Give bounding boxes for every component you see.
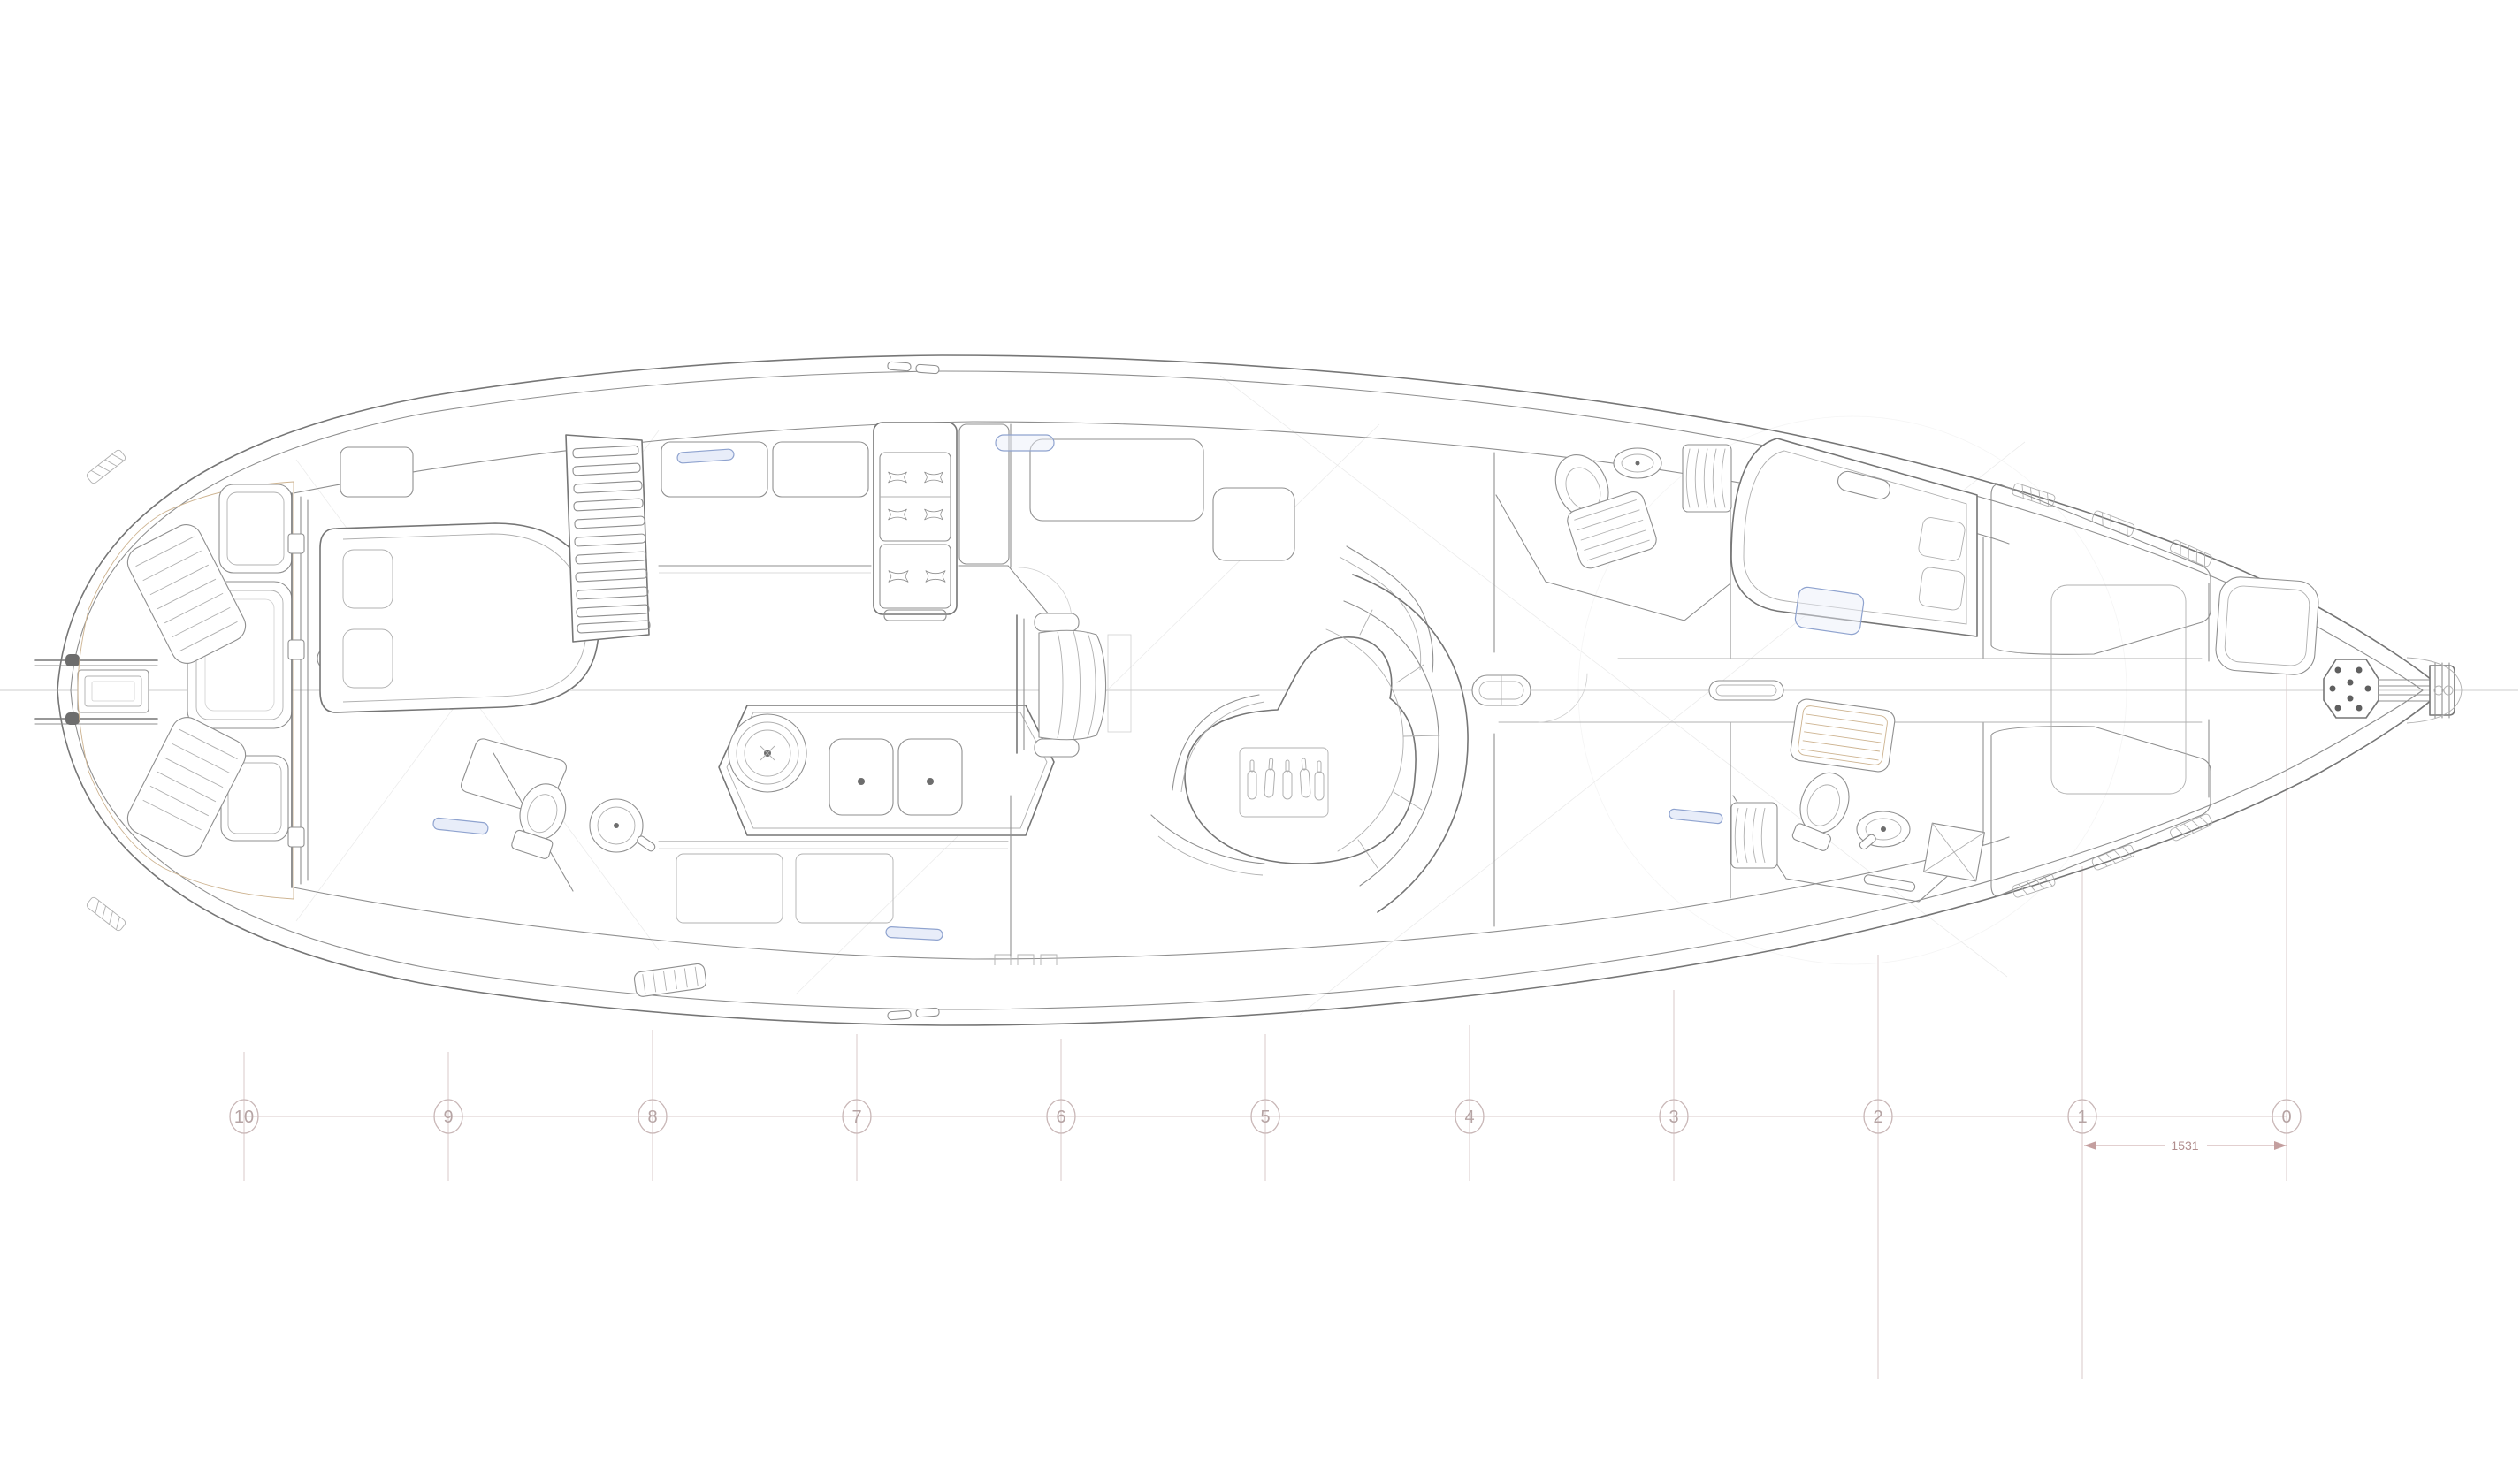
quilt-top — [1991, 484, 2211, 655]
grab-handle-blue — [432, 818, 488, 834]
sink — [1857, 811, 1910, 850]
galley-locker — [773, 442, 868, 497]
grab-handle-blue — [886, 926, 943, 940]
station-label: 2 — [1873, 1108, 1882, 1127]
berth-insert — [2051, 585, 2186, 794]
grab-handle-blue — [1669, 809, 1723, 824]
fore-hatch — [2214, 575, 2319, 676]
floor-grate — [633, 963, 706, 997]
station-label: 9 — [443, 1108, 453, 1127]
louver-door — [1683, 445, 1731, 512]
stove — [874, 423, 957, 621]
engine-control-brackets — [995, 955, 1057, 965]
deck-cleat — [888, 1008, 940, 1020]
dimension-label: 1531 — [2171, 1139, 2198, 1153]
station-label: 0 — [2281, 1108, 2291, 1127]
sink — [590, 799, 656, 852]
grabrail — [1709, 681, 1783, 700]
saloon-cabinet — [1213, 488, 1294, 560]
fwd-cabin-lower — [1731, 698, 1984, 902]
station-label: 8 — [647, 1108, 657, 1127]
grabrail — [1472, 675, 1531, 705]
galley — [633, 423, 1057, 997]
companionway-ladder — [566, 435, 650, 642]
yacht-plan-drawing: 10 9 8 7 6 5 4 3 — [0, 0, 2520, 1470]
sink-island — [719, 705, 1054, 835]
transom-step-panel — [78, 670, 149, 712]
sink — [1614, 448, 1661, 478]
station-label: 4 — [1464, 1108, 1474, 1127]
station-label: 5 — [1260, 1108, 1270, 1127]
windlass-plate — [2324, 659, 2379, 718]
lower-cabinet — [796, 854, 893, 923]
washing-machine — [729, 714, 806, 792]
toilet — [1786, 765, 1857, 853]
station-spacing-dimension: 1531 — [2084, 1139, 2287, 1153]
shower-tray — [1790, 698, 1897, 773]
station-label: 10 — [234, 1108, 254, 1127]
station-label: 3 — [1669, 1108, 1678, 1127]
lower-cabinet — [676, 854, 783, 923]
swim-platform — [35, 654, 157, 725]
aft-cabin-locker — [340, 447, 413, 497]
access-panel — [1924, 823, 1985, 881]
mid-heads — [1496, 445, 1731, 621]
louver-door — [1731, 803, 1777, 868]
rail-cap — [65, 654, 80, 666]
rail-cap — [65, 712, 80, 725]
station-label: 7 — [851, 1108, 861, 1127]
station-label: 6 — [1056, 1108, 1065, 1127]
towel-rail — [1864, 874, 1916, 892]
overhead-hatch-blue — [1794, 586, 1865, 636]
saloon — [1017, 439, 1783, 912]
aft-deck-hatch-small-top — [219, 484, 292, 573]
overhead-hatch-blue — [996, 435, 1054, 451]
saloon-cabinet — [1030, 439, 1203, 521]
aft-cabin-double-berth — [320, 523, 599, 712]
yacht-plan-canvas: 10 9 8 7 6 5 4 3 — [0, 0, 2520, 1470]
station-label: 1 — [2077, 1108, 2087, 1127]
saloon-table — [1172, 637, 1416, 864]
